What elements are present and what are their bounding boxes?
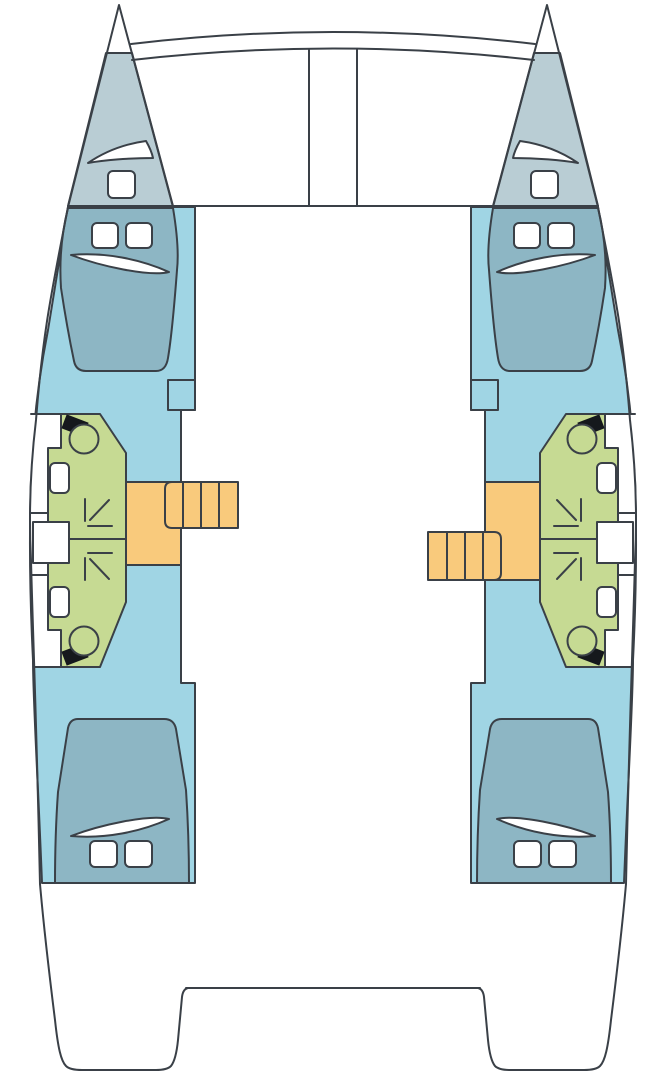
port-companionway (126, 482, 238, 565)
transom-outline (40, 884, 188, 1070)
trampoline-aft-beam (132, 49, 534, 61)
deck-hatch (92, 223, 118, 248)
forward-berth (60, 208, 177, 371)
aft-berth (55, 719, 189, 883)
port-steps (183, 482, 238, 528)
trampoline-forward-beam (131, 32, 535, 44)
forepeak-hatch (108, 171, 135, 198)
starboard-companionway (428, 482, 540, 580)
hull-window (33, 522, 69, 563)
floorplan-svg (0, 0, 645, 1080)
deck-hatch (126, 223, 152, 248)
companionway-step-box (168, 380, 195, 410)
sink-aft (50, 587, 69, 617)
deck-hatch (90, 841, 117, 867)
catamaran-floorplan (0, 0, 645, 1080)
starboard-step-rounded (483, 532, 501, 580)
port-step-rounded (165, 482, 183, 528)
deck-hatch (125, 841, 152, 867)
sink-forward (50, 463, 69, 493)
starboard-steps (428, 532, 483, 580)
